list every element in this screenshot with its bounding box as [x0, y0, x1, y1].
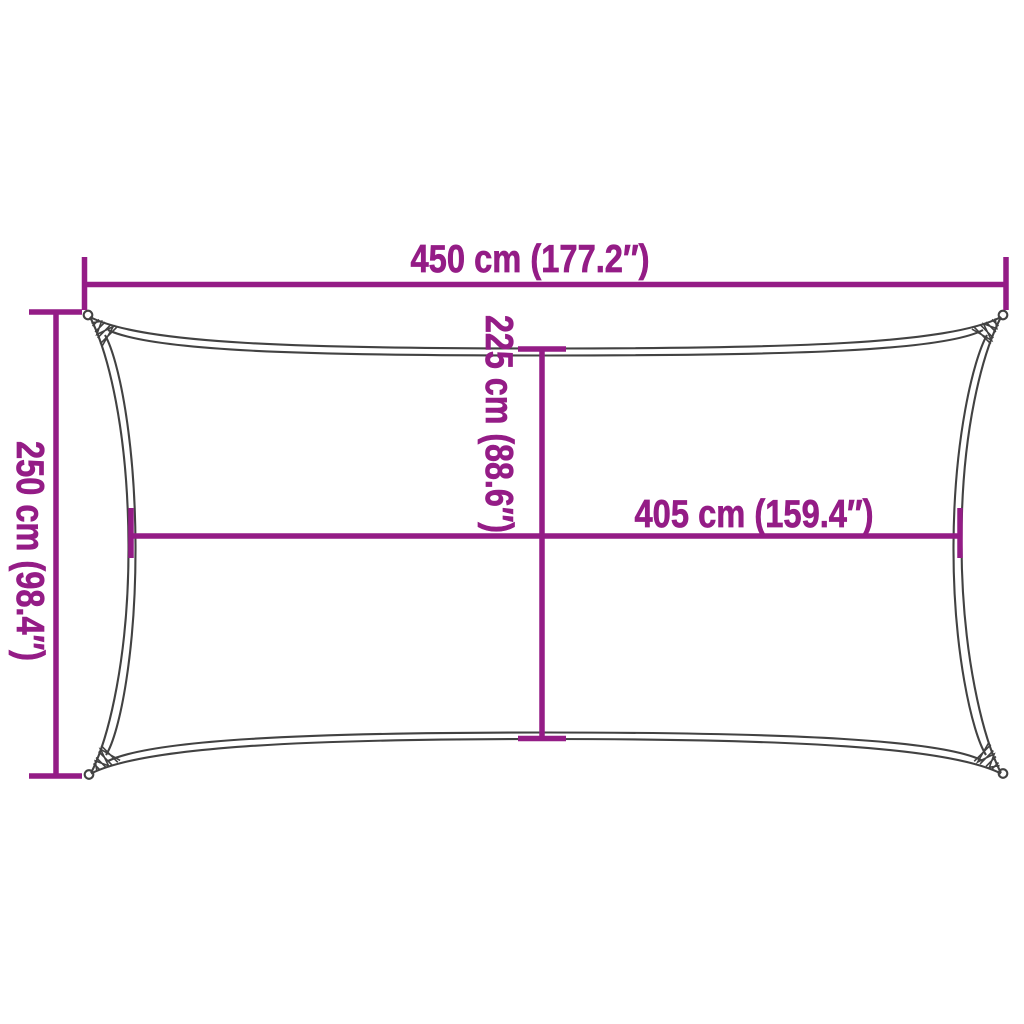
- svg-text:405 cm (159.4″): 405 cm (159.4″): [635, 493, 874, 536]
- svg-text:250 cm (98.4″): 250 cm (98.4″): [8, 441, 51, 661]
- svg-text:225 cm (88.6″): 225 cm (88.6″): [477, 315, 520, 533]
- svg-text:450 cm (177.2″): 450 cm (177.2″): [411, 238, 650, 281]
